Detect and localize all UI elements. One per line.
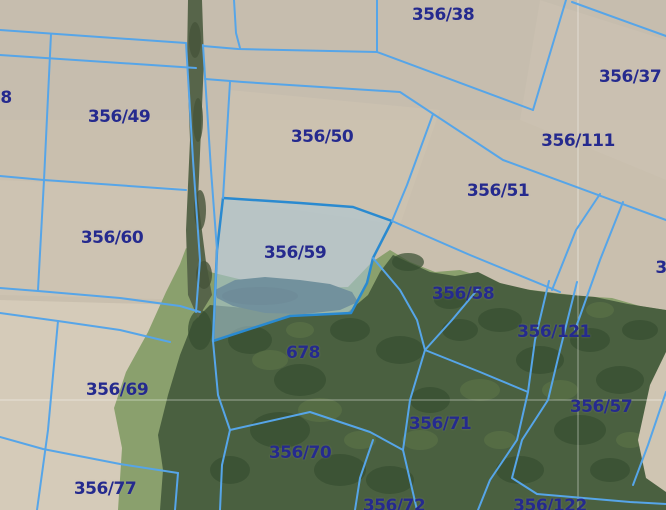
map-viewport[interactable]: 356/38356/378356/49356/50356/111356/5135… xyxy=(0,0,666,510)
